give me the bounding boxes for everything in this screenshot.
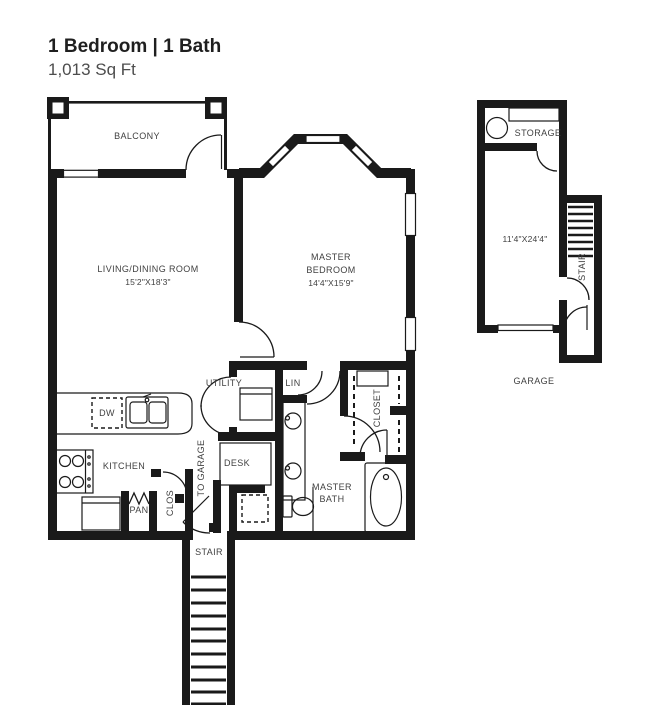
kitchen-counter bbox=[57, 393, 192, 434]
bedroom-label-1: MASTER bbox=[311, 252, 351, 262]
vanity bbox=[283, 402, 305, 500]
bay-window-center bbox=[306, 136, 340, 143]
garage-stair-label: STAIR bbox=[577, 253, 587, 281]
garage-label: GARAGE bbox=[514, 376, 555, 386]
vanity-sink-lower bbox=[285, 463, 301, 479]
stove bbox=[55, 450, 93, 493]
refrigerator bbox=[82, 497, 120, 530]
utility-label: UTILITY bbox=[206, 378, 242, 388]
bedroom-dims: 14'4"X15'9" bbox=[308, 278, 354, 288]
clos-label: CLOS bbox=[165, 490, 175, 516]
desk-label: DESK bbox=[224, 458, 250, 468]
to-garage-label: TO GARAGE bbox=[196, 440, 206, 497]
bay-window-left bbox=[268, 145, 290, 167]
garage-detail bbox=[487, 108, 594, 331]
closet-shelf bbox=[357, 371, 388, 386]
bedroom-label-2: BEDROOM bbox=[306, 265, 355, 275]
toilet bbox=[283, 496, 314, 517]
bedroom-door-arc bbox=[239, 322, 274, 357]
garage-exterior-door-arc bbox=[564, 307, 587, 330]
storage-label: STORAGE bbox=[515, 128, 562, 138]
dw-label: DW bbox=[99, 408, 115, 418]
bath-fixtures bbox=[283, 402, 407, 532]
balcony-post-left bbox=[47, 97, 69, 119]
bay-window-right bbox=[351, 145, 373, 167]
stair-label: STAIR bbox=[195, 547, 223, 557]
bath-label-2: BATH bbox=[320, 494, 345, 504]
main-unit-walls bbox=[48, 169, 415, 705]
bay-window-wall bbox=[239, 139, 411, 173]
kitchen-label: KITCHEN bbox=[103, 461, 145, 471]
lin-door-arc bbox=[298, 371, 322, 395]
garage-dims: 11'4"X24'4" bbox=[503, 234, 548, 244]
kitchen-sink bbox=[126, 394, 168, 428]
shower-pan bbox=[242, 495, 268, 522]
washer-dryer bbox=[240, 388, 272, 420]
main-stairs bbox=[191, 577, 226, 704]
floorplan-page: 1 Bedroom | 1 Bath 1,013 Sq Ft bbox=[0, 0, 650, 705]
balcony-window bbox=[64, 170, 99, 177]
living-label: LIVING/DINING ROOM bbox=[97, 264, 198, 274]
bedroom-window-upper bbox=[406, 194, 416, 236]
floorplan-drawing: BALCONY LIVING/DINING ROOM 15'2"X18'3" M… bbox=[0, 0, 650, 705]
water-heater bbox=[487, 118, 508, 139]
storage-shelf bbox=[509, 108, 559, 121]
garage-door bbox=[498, 325, 553, 331]
utility-door-arc-bottom bbox=[201, 405, 231, 435]
utility-fixtures bbox=[220, 388, 272, 522]
pantry-bifold-door bbox=[129, 493, 149, 504]
vanity-sink-upper bbox=[285, 413, 301, 429]
closet-label: CLOSET bbox=[372, 389, 382, 428]
bathtub bbox=[365, 463, 407, 532]
bath-hall-door-arc bbox=[307, 371, 340, 404]
garage-walls bbox=[477, 100, 602, 363]
balcony-post-right bbox=[205, 97, 227, 119]
balcony-label: BALCONY bbox=[114, 131, 160, 141]
pan-label: PAN bbox=[129, 505, 148, 515]
storage-door-arc bbox=[537, 151, 557, 171]
bath-label-1: MASTER bbox=[312, 482, 352, 492]
balcony-door-arc bbox=[186, 135, 221, 170]
garage-stairs bbox=[568, 207, 593, 256]
bedroom-window-lower bbox=[406, 318, 416, 351]
living-dims: 15'2"X18'3" bbox=[125, 277, 171, 287]
lin-label: LIN bbox=[285, 378, 300, 388]
